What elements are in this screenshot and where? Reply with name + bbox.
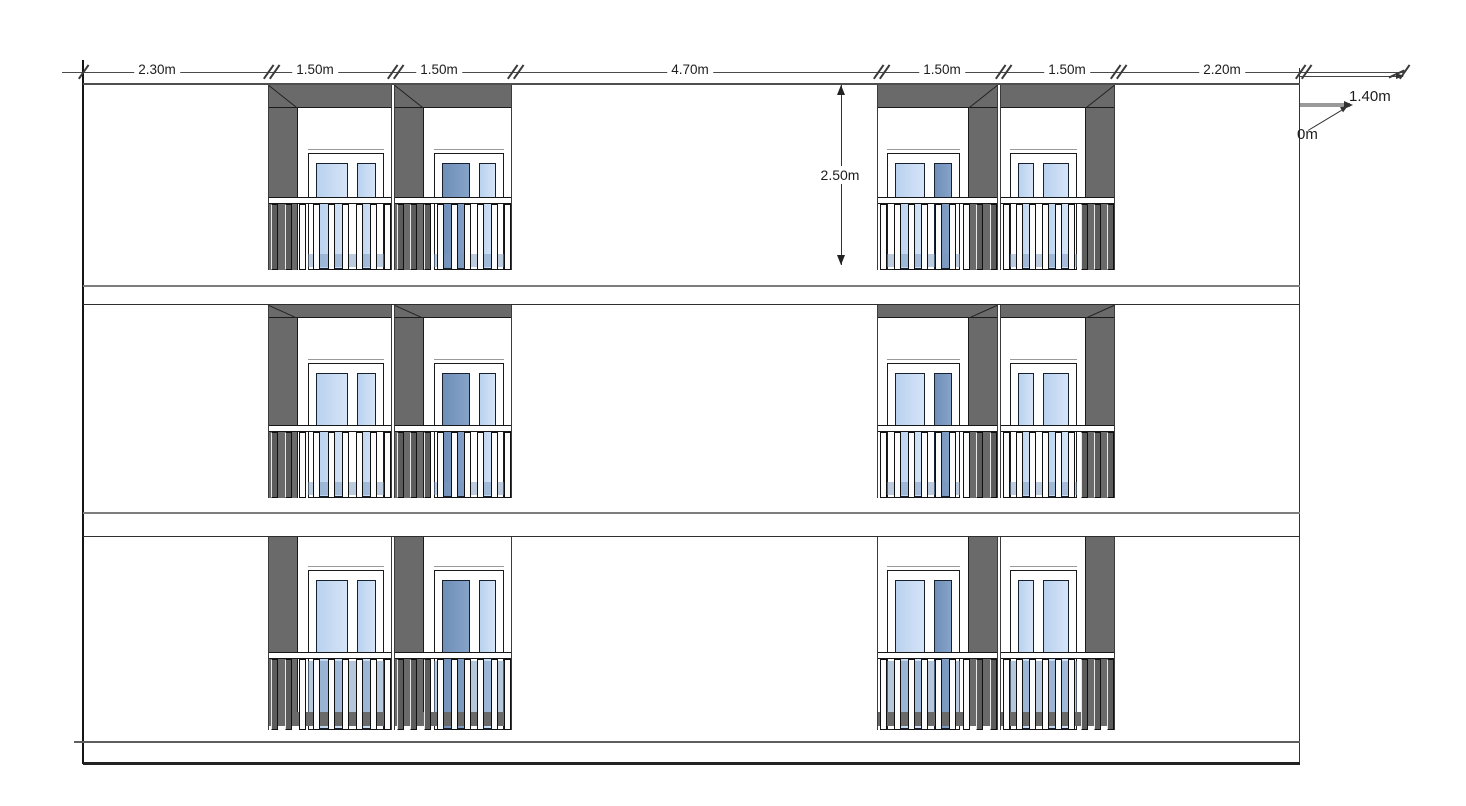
building-bottom-line	[83, 762, 1300, 765]
baluster	[921, 432, 928, 498]
window-head-shadow-line	[1010, 359, 1077, 360]
baluster	[894, 432, 901, 498]
baluster	[313, 432, 320, 498]
arrow-down-icon	[837, 255, 845, 265]
baluster	[342, 204, 349, 270]
baluster	[963, 204, 970, 270]
baluster	[1055, 204, 1062, 270]
baluster	[370, 659, 377, 730]
window-head-shadow-line	[887, 149, 960, 150]
baluster	[397, 432, 404, 498]
baluster	[342, 659, 349, 730]
arrow-up-icon	[837, 85, 845, 95]
balcony-lintel	[878, 85, 997, 108]
window-unit-floor3-left-inner	[394, 537, 512, 730]
baluster	[1068, 432, 1075, 498]
baluster	[313, 659, 320, 730]
baluster	[491, 659, 498, 730]
floor-slab-line	[83, 304, 1300, 305]
railing-top-rail	[269, 197, 391, 204]
baluster	[1042, 432, 1049, 498]
window-unit-floor2-left-outer	[268, 305, 392, 498]
window-head-shadow-line	[434, 359, 504, 360]
floor-slab-line	[83, 536, 1300, 537]
balcony-lintel	[269, 305, 391, 318]
dimension-label: 1.50m	[292, 62, 338, 78]
railing-top-rail	[395, 425, 511, 432]
baluster	[990, 659, 997, 730]
baluster	[949, 204, 956, 270]
baluster	[356, 659, 363, 730]
baluster	[370, 204, 377, 270]
window-head-shadow-line	[887, 359, 960, 360]
baluster	[370, 432, 377, 498]
railing-top-rail	[395, 652, 511, 659]
window-unit-floor1-left-inner	[394, 85, 512, 270]
baluster	[271, 204, 278, 270]
window-unit-floor3-right-inner	[877, 537, 998, 730]
baluster	[935, 659, 942, 730]
railing-top-rail	[269, 652, 391, 659]
baluster	[880, 204, 887, 270]
baluster	[1042, 659, 1049, 730]
baluster	[384, 204, 391, 270]
baluster	[424, 659, 431, 730]
baluster	[491, 432, 498, 498]
baluster	[990, 432, 997, 498]
baluster	[285, 432, 292, 498]
baluster	[1081, 204, 1088, 270]
baluster	[477, 432, 484, 498]
baluster	[976, 204, 983, 270]
baluster	[410, 204, 417, 270]
baluster	[464, 432, 471, 498]
building-right-edge	[1299, 68, 1300, 764]
floor-slab-line	[83, 285, 1300, 287]
dimension-label: 1.50m	[416, 62, 462, 78]
window-head-shadow-line	[434, 566, 504, 567]
floor-slab-line	[83, 512, 1300, 514]
window-head-shadow-line	[434, 149, 504, 150]
railing-top-rail	[878, 425, 997, 432]
dimension-label: 1.50m	[1044, 62, 1090, 78]
baluster	[976, 659, 983, 730]
clipped-dimension-label: 0m	[1297, 126, 1318, 143]
baluster	[1003, 204, 1010, 270]
baluster	[1055, 432, 1062, 498]
baluster	[424, 432, 431, 498]
window-unit-floor2-right-outer	[1000, 305, 1115, 498]
window-unit-floor3-left-outer	[268, 537, 392, 730]
baluster	[424, 204, 431, 270]
baluster	[990, 204, 997, 270]
baluster	[976, 432, 983, 498]
baluster	[464, 659, 471, 730]
baluster	[894, 204, 901, 270]
offset-dimension-label: 1.40m	[1349, 88, 1391, 105]
railing-top-rail	[878, 197, 997, 204]
baluster	[437, 432, 444, 498]
baluster	[921, 659, 928, 730]
baluster	[1068, 659, 1075, 730]
baluster	[271, 432, 278, 498]
railing-top-rail	[878, 652, 997, 659]
baluster	[935, 432, 942, 498]
baluster	[1094, 659, 1101, 730]
window-unit-floor3-right-outer	[1000, 537, 1115, 730]
baluster	[880, 432, 887, 498]
baluster	[1016, 204, 1023, 270]
baluster	[299, 432, 306, 498]
baluster	[1042, 204, 1049, 270]
dimension-label: 1.50m	[919, 62, 965, 78]
baluster	[908, 204, 915, 270]
baluster	[451, 204, 458, 270]
baluster	[949, 432, 956, 498]
railing-top-rail	[269, 425, 391, 432]
baluster	[880, 659, 887, 730]
balcony-lintel	[1001, 85, 1114, 108]
baluster	[908, 659, 915, 730]
window-head-shadow-line	[887, 566, 960, 567]
dimension-label: 2.20m	[1199, 62, 1245, 78]
baluster	[1081, 659, 1088, 730]
window-unit-floor2-right-inner	[877, 305, 998, 498]
window-head-shadow-line	[308, 149, 384, 150]
balcony-lintel	[395, 85, 511, 108]
baluster	[1107, 432, 1114, 498]
baluster	[356, 432, 363, 498]
baluster	[1094, 204, 1101, 270]
baluster	[299, 204, 306, 270]
baluster	[491, 204, 498, 270]
baluster	[410, 659, 417, 730]
baluster	[1029, 204, 1036, 270]
elevation-drawing: 2.30m 1.50m 1.50m 4.70m 1.50m 1.50m 2.20…	[0, 0, 1466, 806]
railing-top-rail	[1001, 197, 1114, 204]
baluster	[1055, 659, 1062, 730]
baluster	[935, 204, 942, 270]
baluster	[1029, 432, 1036, 498]
baluster	[921, 204, 928, 270]
dimension-label: 2.30m	[134, 62, 180, 78]
window-head-shadow-line	[308, 359, 384, 360]
baluster	[1068, 204, 1075, 270]
baluster	[397, 659, 404, 730]
baluster	[1081, 432, 1088, 498]
baluster	[328, 204, 335, 270]
railing-top-rail	[1001, 425, 1114, 432]
baluster	[477, 659, 484, 730]
baluster	[504, 432, 511, 498]
baluster	[504, 204, 511, 270]
baluster	[328, 432, 335, 498]
baluster	[313, 204, 320, 270]
baluster	[384, 432, 391, 498]
baluster	[356, 204, 363, 270]
baluster	[299, 659, 306, 730]
baluster	[437, 659, 444, 730]
baluster	[1016, 659, 1023, 730]
baluster	[328, 659, 335, 730]
baluster	[384, 659, 391, 730]
window-head-shadow-line	[1010, 149, 1077, 150]
baluster	[451, 432, 458, 498]
window-unit-floor1-left-outer	[268, 85, 392, 270]
baluster	[1107, 204, 1114, 270]
baluster	[410, 432, 417, 498]
building-left-edge	[82, 60, 84, 764]
baluster	[464, 204, 471, 270]
balcony-lintel	[269, 85, 391, 108]
baluster	[397, 204, 404, 270]
baluster	[963, 659, 970, 730]
window-unit-floor1-right-outer	[1000, 85, 1115, 270]
window-head-shadow-line	[308, 566, 384, 567]
baluster	[285, 204, 292, 270]
baluster	[908, 432, 915, 498]
balcony-lintel	[395, 305, 511, 318]
baluster	[1094, 432, 1101, 498]
baluster	[963, 432, 970, 498]
base-slab-line	[74, 741, 1300, 743]
baluster	[285, 659, 292, 730]
baluster	[1016, 432, 1023, 498]
roof-line	[83, 83, 1300, 85]
railing-top-rail	[1001, 652, 1114, 659]
arrow-right-icon	[1396, 73, 1404, 79]
window-head-shadow-line	[1010, 566, 1077, 567]
baluster	[504, 659, 511, 730]
railing-top-rail	[395, 197, 511, 204]
baluster	[894, 659, 901, 730]
story-height-label: 2.50m	[818, 166, 863, 184]
baluster	[1107, 659, 1114, 730]
baluster	[1003, 432, 1010, 498]
dimension-label: 4.70m	[667, 62, 713, 78]
baluster	[1029, 659, 1036, 730]
baluster	[477, 204, 484, 270]
baluster	[271, 659, 278, 730]
baluster	[342, 432, 349, 498]
baluster	[1003, 659, 1010, 730]
window-unit-floor2-left-inner	[394, 305, 512, 498]
baluster	[949, 659, 956, 730]
window-unit-floor1-right-inner	[877, 85, 998, 270]
baluster	[451, 659, 458, 730]
baluster	[437, 204, 444, 270]
